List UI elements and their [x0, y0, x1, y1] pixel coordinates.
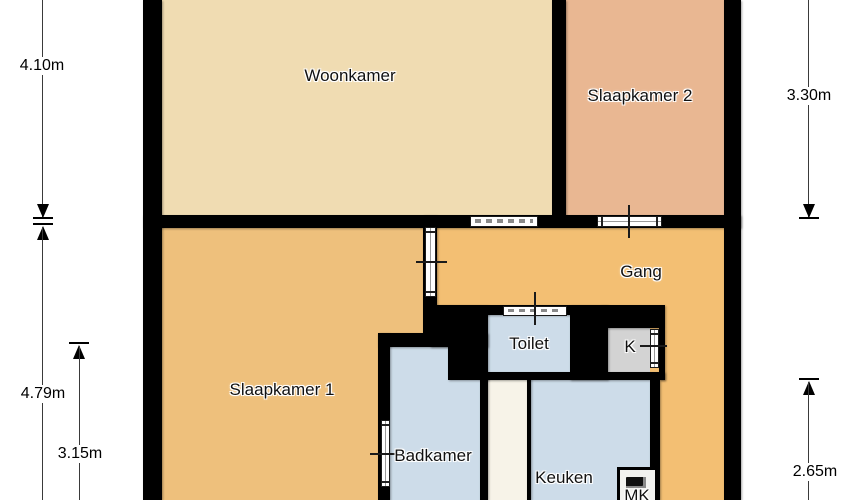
- door-slaapkamer1-line: [416, 261, 447, 263]
- room-slaapkamer2: [558, 0, 730, 220]
- dim-label-2-65m: 2.65m: [791, 463, 839, 481]
- wall-outer-right: [724, 0, 741, 500]
- room-label-meterkast: MK: [624, 486, 650, 500]
- wall-woonkamer-slaapkamer2: [552, 0, 566, 220]
- dim-arrow-down-3-30m: [803, 204, 815, 218]
- door-badkamer-line: [370, 453, 396, 455]
- wall-shaft-left: [480, 372, 488, 500]
- room-label-slaapkamer2: Slaapkamer 2: [588, 86, 693, 106]
- shaft-area: [488, 378, 527, 500]
- dim-line-4-79m: [42, 227, 43, 500]
- dim-tick-3-15m: [69, 342, 89, 344]
- door-kast-line: [640, 345, 667, 347]
- room-label-badkamer: Badkamer: [394, 446, 471, 466]
- room-label-toilet: Toilet: [509, 334, 549, 354]
- dim-line-3-30m: [808, 0, 809, 218]
- room-woonkamer: [152, 0, 560, 220]
- wall-outer-left: [143, 0, 162, 500]
- floorplan-canvas: Woonkamer Slaapkamer 2 Gang Slaapkamer 1…: [0, 0, 850, 500]
- dim-arrow-up-2-65m: [803, 381, 815, 395]
- wall-kast-top: [600, 305, 665, 328]
- room-label-woonkamer: Woonkamer: [304, 66, 395, 86]
- dim-line-4-10m: [42, 0, 43, 218]
- room-label-kast: K: [624, 337, 635, 357]
- wall-kast-toilet-bottom: [480, 372, 665, 380]
- dim-label-4-10m: 4.10m: [18, 57, 66, 75]
- door-slaapkamer2-line: [628, 205, 630, 238]
- dim-line-2-65m: [808, 382, 809, 500]
- opening-woonkamer-sill: [470, 216, 538, 227]
- door-kast-sill: [650, 329, 659, 368]
- dim-tick-2-65m: [799, 378, 819, 380]
- dim-label-3-30m: 3.30m: [785, 87, 833, 105]
- dim-label-3-15m: 3.15m: [56, 445, 104, 463]
- room-label-keuken: Keuken: [535, 468, 593, 488]
- dim-tick-4-79m: [33, 223, 53, 225]
- wall-shaft-right: [527, 378, 531, 500]
- dim-line-3-15m: [79, 346, 80, 500]
- dim-tick-3-30m: [799, 217, 819, 219]
- dim-arrow-down-4-10m: [37, 204, 49, 218]
- room-label-slaapkamer1: Slaapkamer 1: [230, 380, 335, 400]
- dim-arrow-up-4-79m: [37, 226, 49, 240]
- room-label-gang: Gang: [620, 262, 662, 282]
- dim-tick-4-10m: [33, 217, 53, 219]
- door-toilet-line: [534, 292, 536, 325]
- dim-label-4-79m: 4.79m: [19, 385, 67, 403]
